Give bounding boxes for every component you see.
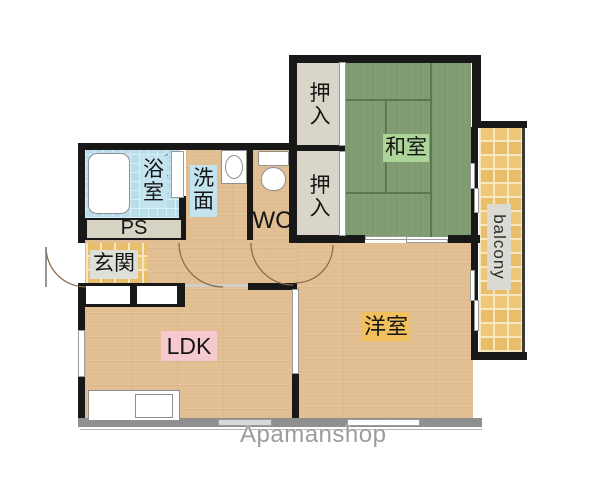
window	[474, 300, 479, 331]
wall-segment	[289, 235, 365, 243]
wall-segment	[472, 55, 481, 127]
shoe-cabinet-1	[86, 286, 130, 304]
wall-segment	[292, 373, 299, 420]
wall-segment	[248, 283, 297, 290]
wall-segment	[477, 121, 527, 128]
yoshitsu-label: 洋室	[362, 312, 410, 341]
wall-segment	[476, 352, 527, 360]
genkan-label: 玄関	[90, 250, 138, 279]
ldk-label: LDK	[161, 331, 217, 361]
toilet-bowl	[261, 167, 286, 191]
watermark: Apamanshop	[240, 421, 386, 449]
sliding-door	[339, 151, 346, 236]
wc-label: WC	[250, 207, 295, 235]
entrance-door-arc	[46, 247, 86, 287]
shoe-cabinet-2	[137, 286, 177, 304]
bath-label: 浴室	[140, 156, 167, 208]
washroom-label: 洗面	[190, 165, 217, 217]
window	[470, 270, 475, 301]
toilet-tank	[258, 151, 289, 166]
oshiire-lower-label: 押入	[306, 172, 334, 224]
window	[78, 330, 85, 377]
window	[470, 163, 475, 189]
bathtub	[88, 153, 130, 214]
sliding-door	[339, 62, 346, 146]
ps-label: PS	[85, 218, 183, 240]
wall-segment	[78, 143, 297, 150]
wall-segment	[448, 235, 480, 243]
kitchen-sink	[135, 394, 173, 418]
wall-segment	[78, 143, 85, 243]
sliding-door	[406, 239, 448, 243]
wash-basin-bowl	[225, 155, 243, 179]
wall-segment	[78, 307, 85, 330]
washitsu-label: 和室	[383, 134, 429, 162]
tatami-seam	[345, 99, 430, 101]
wall-segment	[289, 145, 345, 151]
window	[474, 188, 479, 213]
sliding-door	[292, 289, 299, 374]
balcony-label: balcony	[487, 204, 511, 290]
sliding-door	[365, 236, 407, 240]
bath-door	[171, 151, 184, 198]
floorplan: 押入 押入 和室 浴室 洗面 WC PS 玄関 LDK 洋室 balcony A…	[0, 0, 600, 480]
wall-segment	[289, 55, 480, 63]
threshold	[185, 284, 248, 287]
tatami-seam	[345, 192, 430, 194]
oshiire-upper-label: 押入	[306, 80, 334, 132]
tatami-seam	[430, 62, 432, 237]
